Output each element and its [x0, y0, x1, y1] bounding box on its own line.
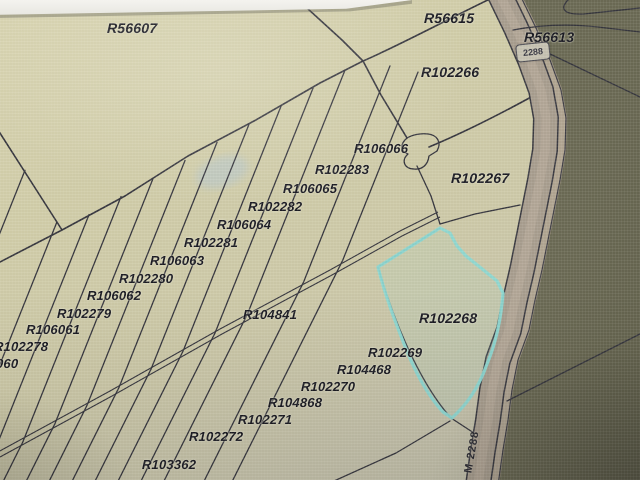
parcel-label: R106065	[283, 181, 338, 196]
parcel-label: 060	[0, 356, 19, 371]
map-canvas[interactable]: R56607R56615R56613R102266R106066R102283R…	[0, 0, 640, 480]
parcel-label: R56615	[424, 10, 475, 26]
parcel-label: R106066	[354, 141, 409, 156]
parcel-label: R102283	[315, 162, 370, 177]
parcel-label: R106061	[26, 322, 81, 337]
parcel-label: R102280	[119, 271, 174, 286]
parcel-label: R102268	[419, 310, 478, 326]
parcel-label: R102267	[451, 170, 510, 186]
parcel-labels: R56607R56615R56613R102266R106066R102283R…	[0, 0, 640, 480]
parcel-label: R104868	[268, 395, 323, 410]
parcel-label: R106064	[217, 217, 272, 232]
parcel-label: R102278	[0, 339, 48, 354]
parcel-label: R106062	[87, 288, 142, 303]
parcel-label: R102279	[57, 306, 112, 321]
parcel-label: R104841	[243, 307, 298, 322]
parcel-label: R102282	[248, 199, 303, 214]
parcel-label: R102266	[421, 64, 480, 80]
parcel-label: R102281	[184, 235, 239, 250]
parcel-label: R102272	[189, 429, 244, 444]
parcel-label: R56607	[107, 20, 158, 36]
parcel-label: R102269	[368, 345, 423, 360]
highway-shield-2288: 2288	[515, 41, 551, 62]
parcel-label: R102270	[301, 379, 356, 394]
parcel-label: R103362	[142, 457, 197, 472]
parcel-label: R104468	[337, 362, 392, 377]
parcel-label: R106063	[150, 253, 205, 268]
parcel-label: R102271	[238, 412, 293, 427]
